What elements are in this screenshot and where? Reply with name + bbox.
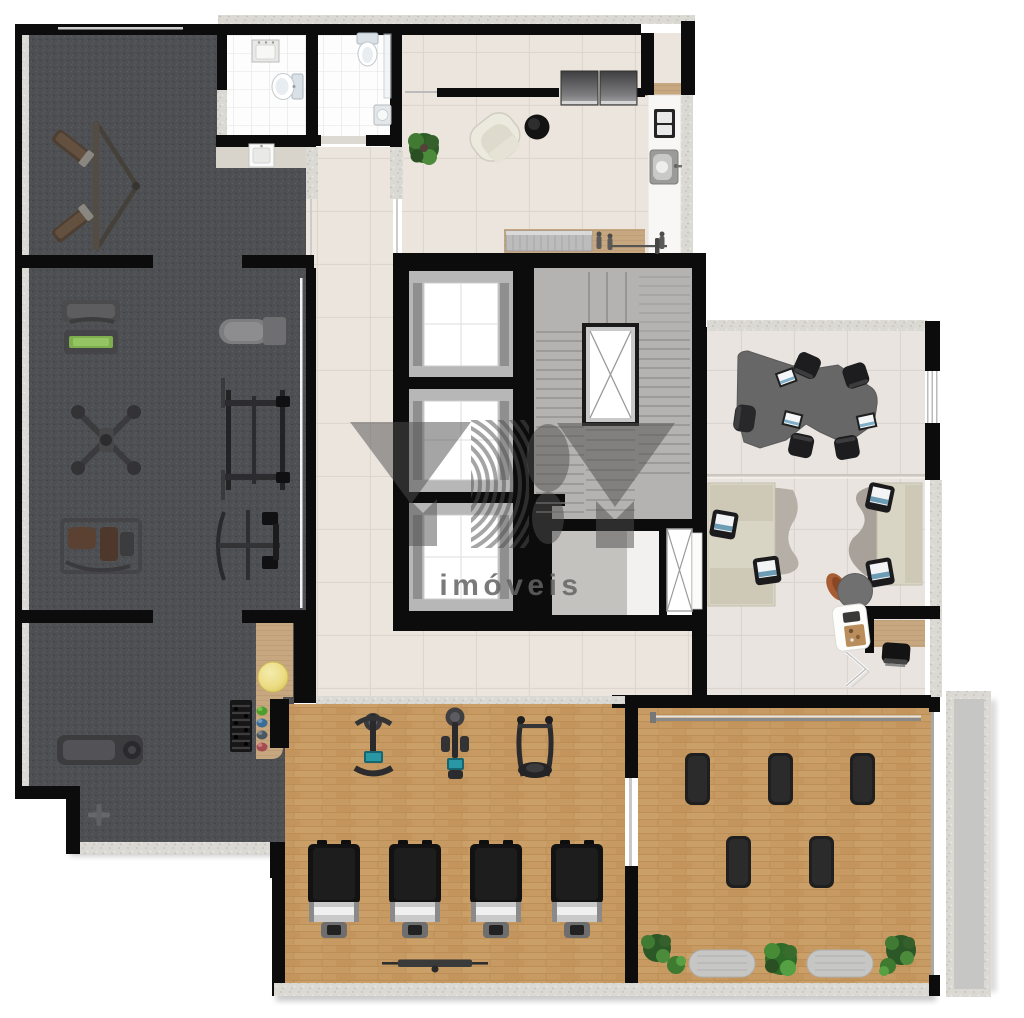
svg-text:imóveis: imóveis <box>439 569 582 602</box>
